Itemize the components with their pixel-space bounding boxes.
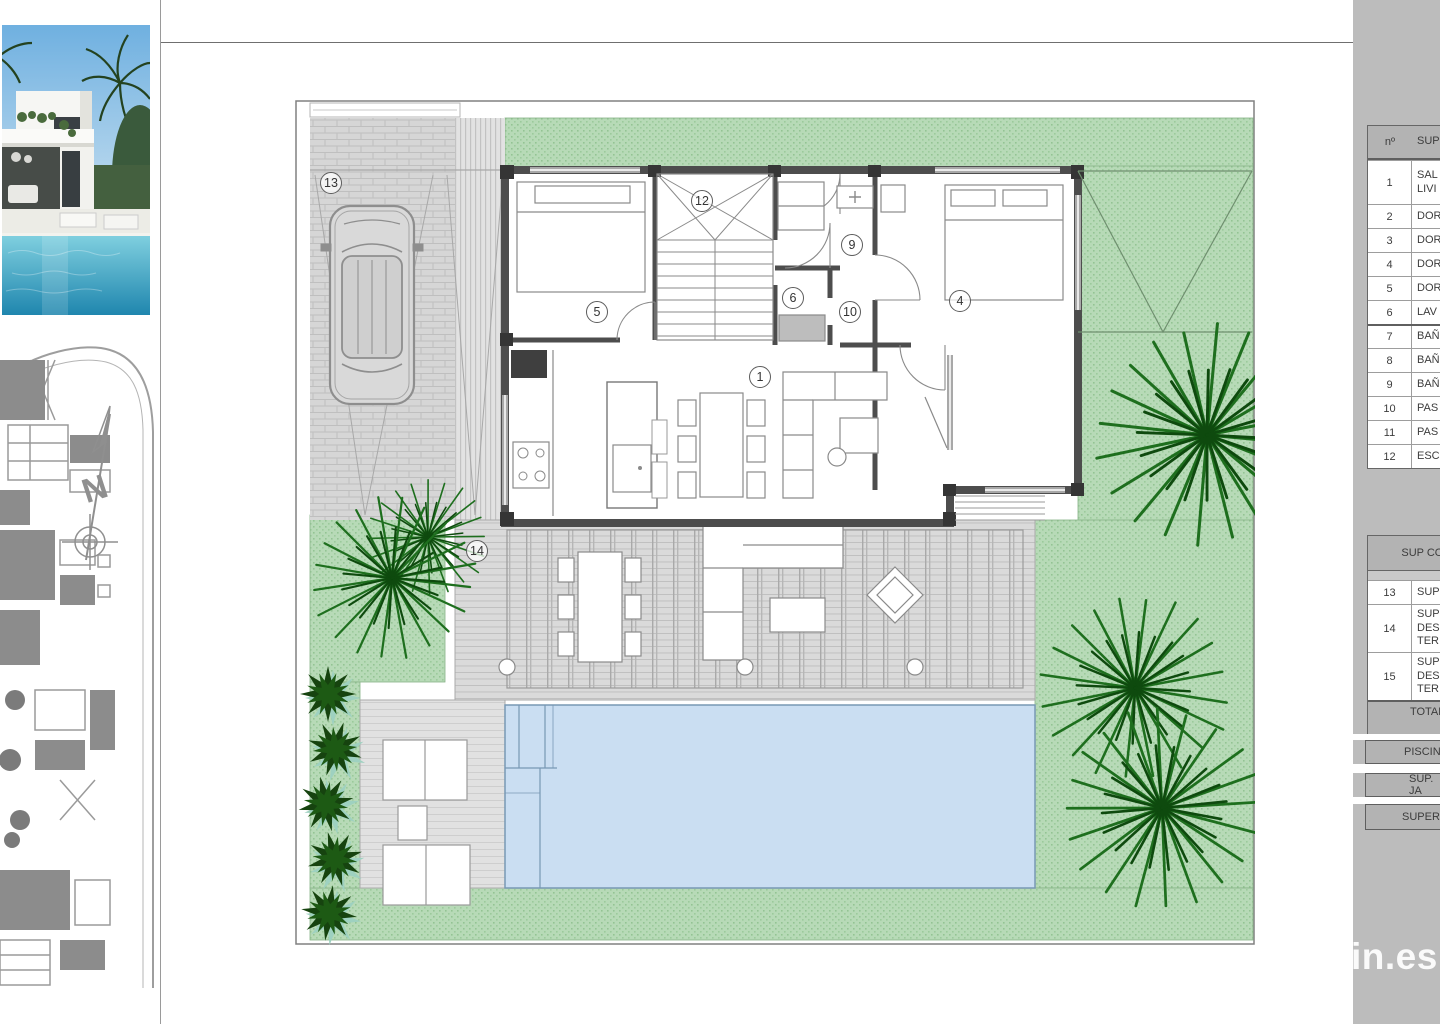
room-label-4: 4 (949, 290, 971, 312)
room-label-12: 12 (691, 190, 713, 212)
table-row: 14SUP DES TER (1368, 604, 1440, 652)
table-spacer (1368, 571, 1440, 580)
sheet-border-vertical (160, 0, 161, 1024)
north-letter: N (77, 467, 112, 511)
island-sink (613, 445, 651, 492)
deck-coffee-table (770, 598, 825, 632)
bedroom5-furniture (517, 182, 645, 292)
photo-lounger-2 (104, 215, 138, 229)
stove (513, 442, 549, 488)
drawing-sheet: N (0, 0, 1440, 1024)
house (500, 165, 1084, 526)
laundry-unit (779, 315, 825, 341)
built-surface-header: SUP CONS (1368, 536, 1440, 571)
white-gap (1353, 764, 1440, 773)
bedside-table (881, 185, 905, 212)
pool-surface-band: PISCIN (1365, 740, 1440, 764)
table-row: 10PAS (1368, 396, 1440, 420)
garden-surface-band: SUP. JA (1365, 773, 1440, 797)
dining-set (678, 393, 765, 498)
table-row: 2DOR (1368, 204, 1440, 228)
car-mirror-right (413, 244, 423, 251)
fridge (511, 350, 547, 378)
dining-table (700, 393, 743, 497)
table-row: 9BAÑ (1368, 372, 1440, 396)
table-row: 1SAL LIVI (1368, 160, 1440, 204)
table-row: 3DOR (1368, 228, 1440, 252)
total-row: TOTAL SUP CO BU (1368, 700, 1440, 738)
photo-hedge (94, 165, 150, 213)
compass-rose-icon (62, 514, 118, 570)
table-row: 8BAÑ (1368, 348, 1440, 372)
table-row: 4DOR (1368, 252, 1440, 276)
deck-post (499, 659, 515, 675)
table-row: 11PAS (1368, 420, 1440, 444)
plot-surface-band: SUPERFIC (1365, 804, 1440, 830)
sheet-border-horizontal (161, 42, 1353, 43)
deck-post (737, 659, 753, 675)
site-plan-trees (0, 690, 30, 848)
white-gap (1353, 797, 1440, 804)
photo-pool-highlight (42, 236, 68, 315)
room-label-5: 5 (586, 301, 608, 323)
header-num: nº (1368, 126, 1412, 158)
coffee-table (840, 418, 878, 453)
table-row: 12ESC (1368, 444, 1440, 468)
photo-lounger (60, 213, 96, 227)
deck-terrace (455, 520, 1035, 700)
room-label-6: 6 (782, 287, 804, 309)
table-row: 13SUP (1368, 580, 1440, 604)
floor-lamp (828, 448, 846, 466)
watermark: in.es (1351, 936, 1438, 978)
room-label-13: 13 (320, 172, 342, 194)
header-desc: SUP (1412, 126, 1440, 158)
room-label-14: 14 (466, 540, 488, 562)
deck-dining-table (578, 552, 622, 662)
table-row: 15SUP DES TER (1368, 652, 1440, 700)
paved-pool-side (360, 700, 505, 905)
car-mirror-left (321, 244, 331, 251)
rooms-surface-table: nº SUP 1SAL LIVI 2DOR 3DOR 4DOR 5DOR 6LA… (1367, 125, 1440, 469)
table-header-row: nº SUP (1368, 126, 1440, 160)
photo-pool-edge (2, 233, 150, 236)
photo-pool (2, 236, 150, 315)
floor-plan (295, 100, 1255, 945)
room-label-10: 10 (839, 301, 861, 323)
north-compass: N (50, 392, 145, 587)
room-label-1: 1 (749, 366, 771, 388)
table-row: 6LAV (1368, 300, 1440, 324)
side-table (398, 806, 427, 840)
table-row: 7BAÑ (1368, 324, 1440, 348)
room-label-9: 9 (841, 234, 863, 256)
swimming-pool (505, 705, 1035, 888)
deck-post (907, 659, 923, 675)
surfaces-panel: nº SUP 1SAL LIVI 2DOR 3DOR 4DOR 5DOR 6LA… (1353, 0, 1440, 1024)
built-surface-table: SUP CONS 13SUP 14SUP DES TER 15SUP DES T… (1367, 535, 1440, 739)
villa-photo (2, 25, 150, 315)
car-top-view (321, 206, 423, 404)
table-row: 5DOR (1368, 276, 1440, 300)
